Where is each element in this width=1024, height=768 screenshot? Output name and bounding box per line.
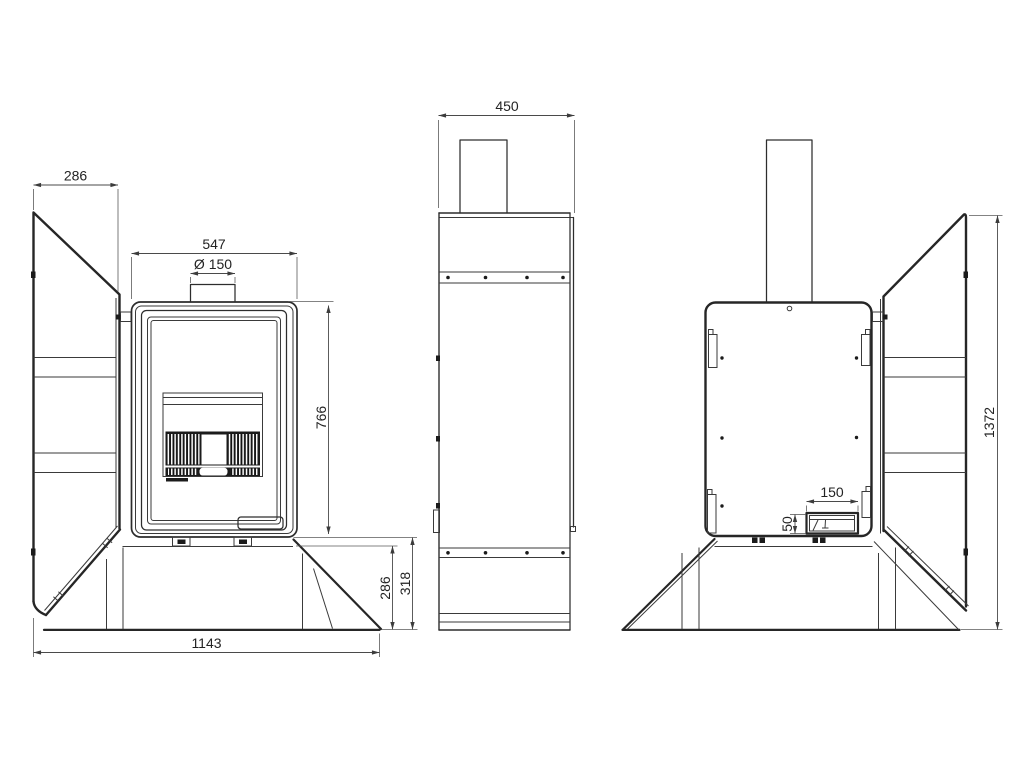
burner-button — [200, 468, 228, 476]
side-rivets — [446, 276, 565, 555]
side-hinge-pin — [436, 356, 440, 362]
rear-mount-brackets — [708, 330, 871, 534]
dim-label-plinth-height: 286 — [377, 576, 393, 600]
panel-screw — [964, 549, 969, 556]
burner-assembly — [163, 393, 263, 482]
dim-label-outlet-width: 150 — [820, 484, 844, 500]
side-view: 450 — [434, 98, 576, 630]
panel-screw — [964, 272, 969, 279]
side-hinge-pin — [436, 503, 440, 509]
door-nameplate — [238, 517, 283, 529]
dim-label-overall-width: 1143 — [191, 635, 221, 651]
rear-right-side-panel — [873, 214, 969, 610]
brand-mark — [166, 478, 188, 482]
panel-hinge-pin — [883, 315, 888, 320]
dim-side-panel-width: 286 — [34, 168, 119, 293]
panel-hinge — [873, 312, 884, 322]
side-body — [434, 213, 576, 630]
dim-label-base-height: 318 — [397, 572, 413, 596]
burner-grille-right — [229, 434, 259, 465]
dim-label-outlet-height: 50 — [779, 516, 795, 532]
rear-feet — [752, 538, 826, 544]
front-view: 286 547 Ø 150 766 286 31 — [31, 168, 418, 658]
dim-label-overall-height: 1372 — [981, 407, 997, 438]
panel-fold-rungs — [904, 547, 954, 596]
rear-flue-duct — [767, 140, 813, 302]
flue-collar — [191, 285, 236, 303]
panel-screw — [31, 549, 36, 556]
panel-screw — [31, 272, 36, 279]
side-flue-duct — [460, 140, 507, 213]
dim-outlet-height: 50 — [779, 515, 806, 534]
panel-hinge — [121, 312, 132, 322]
technical-drawing-canvas: 286 547 Ø 150 766 286 31 — [0, 0, 1024, 768]
cable-outlet — [807, 513, 859, 534]
dim-overall-width: 1143 — [34, 618, 380, 657]
burner-grille-left — [168, 434, 200, 465]
dim-body-height: 766 — [288, 302, 417, 538]
burn-pot-window — [202, 435, 227, 465]
rear-view: 150 50 1372 — [623, 140, 1003, 630]
dim-label-flue-diameter: Ø 150 — [194, 256, 232, 272]
dim-flue-diameter: Ø 150 — [191, 256, 236, 283]
panel-hinge-pin — [116, 315, 121, 320]
dim-label-side-panel-width: 286 — [64, 168, 88, 184]
front-left-side-panel — [31, 213, 131, 616]
dim-label-depth: 450 — [495, 98, 519, 114]
dim-label-body-width: 547 — [202, 236, 226, 252]
front-stove-body — [132, 285, 298, 538]
rear-panel — [706, 303, 872, 537]
side-hinge-pin — [436, 436, 440, 442]
dim-outlet-width: 150 — [807, 484, 859, 512]
front-feet — [173, 537, 252, 546]
rear-plinth — [623, 539, 960, 630]
dim-label-body-height: 766 — [313, 406, 329, 430]
rear-hole — [787, 306, 792, 311]
